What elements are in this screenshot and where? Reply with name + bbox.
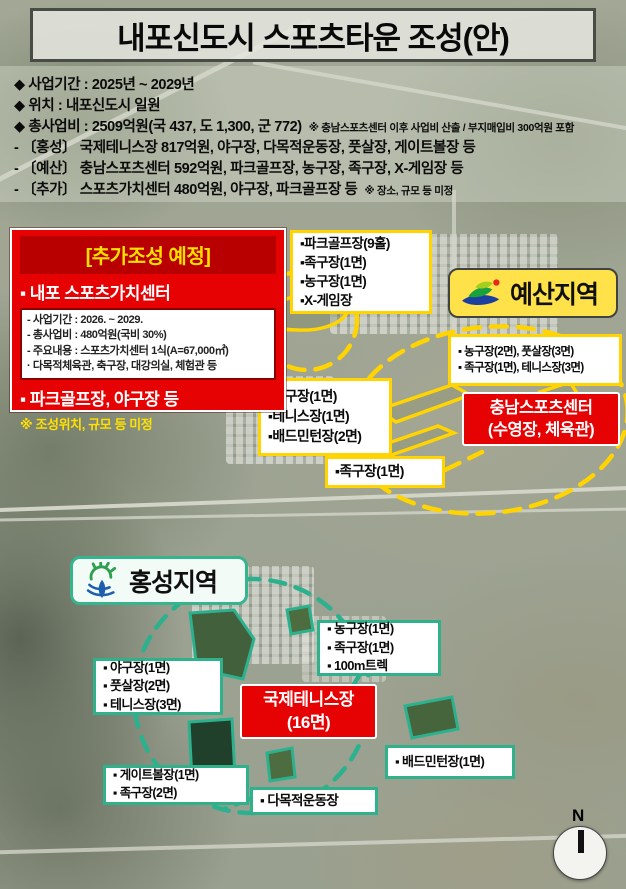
info-row-hongseong: - 〔홍성〕 국제테니스장 817억원, 야구장, 다목적운동장, 풋살장, 게… xyxy=(14,136,614,157)
label-jokgu: ▪족구장(1면) xyxy=(325,456,445,488)
additional-plan-box: [추가조성 예정] ▪ 내포 스포츠가치센터 - 사업기간 : 2026. ~ … xyxy=(10,228,286,412)
label-hs-baseball: ▪ 야구장(1면) ▪ 풋살장(2면) ▪ 테니스장(3면) xyxy=(93,658,223,715)
label-multipurpose: ▪ 다목적운동장 xyxy=(250,787,378,815)
plan-box-header: [추가조성 예정] xyxy=(20,236,276,274)
info-row-additional: - 〔추가〕 스포츠가치센터 480억원, 야구장, 파크골프장 등※ 장소, … xyxy=(14,178,614,199)
page-title-text: 내포신도시 스포츠타운 조성(안) xyxy=(117,13,509,58)
hongseong-region-badge: 홍성지역 xyxy=(70,556,248,605)
yesan-connector-line xyxy=(445,452,482,470)
label-hs-track: ▪ 농구장(1면) ▪ 족구장(1면) ▪ 100m트렉 xyxy=(317,620,441,676)
compass-icon xyxy=(553,826,607,880)
compass-north-label: N xyxy=(572,806,584,826)
label-gateball: ▪ 게이트볼장(1면) ▪ 족구장(2면) xyxy=(103,765,249,805)
map-road xyxy=(0,833,626,854)
info-additional-note: ※ 장소, 규모 등 미정 xyxy=(364,185,453,197)
intl-tennis-center-label: 국제테니스장 (16면) xyxy=(240,684,377,739)
hongseong-region-label: 홍성지역 xyxy=(129,563,217,599)
poster: 내포신도시 스포츠타운 조성(안) ◆ 사업기간 : 2025년 ~ 2029년… xyxy=(0,0,626,889)
yesan-region-label: 예산지역 xyxy=(510,275,598,311)
hongseong-facility-outline xyxy=(405,697,458,738)
project-info: ◆ 사업기간 : 2025년 ~ 2029년 ◆ 위치 : 내포신도시 일원 ◆… xyxy=(0,66,626,202)
compass-needle xyxy=(578,830,584,853)
page-title: 내포신도시 스포츠타운 조성(안) xyxy=(30,8,596,62)
info-row-yesan: - 〔예산〕 충남스포츠센터 592억원, 파크골프장, 농구장, 족구장, X… xyxy=(14,157,614,178)
hongseong-facility-outline xyxy=(267,748,295,781)
map-road xyxy=(0,507,626,521)
yesan-logo-icon xyxy=(460,277,502,309)
plan-footnote: ※ 조성위치, 규모 등 미정 xyxy=(20,414,276,433)
yesan-region-badge: 예산지역 xyxy=(448,268,618,318)
info-row-location: ◆ 위치 : 내포신도시 일원 xyxy=(14,94,614,115)
info-budget-note: ※ 충남스포츠센터 이후 사업비 산출 / 부지매입비 300억원 포함 xyxy=(309,122,574,134)
chungnam-sports-center-label: 충남스포츠센터 (수영장, 체육관) xyxy=(462,392,620,446)
label-badminton: ▪ 배드민턴장(1면) xyxy=(385,745,515,779)
info-row-period: ◆ 사업기간 : 2025년 ~ 2029년 xyxy=(14,73,614,94)
label-yesan-courts: ▪ 농구장(2면), 풋살장(3면) ▪ 족구장(1면), 테니스장(3면) xyxy=(448,334,622,386)
label-yesan-parkgolf: ▪파크골프장(9홀) ▪족구장(1면) ▪농구장(1면) ▪X-게임장 xyxy=(290,230,432,314)
plan-details: - 사업기간 : 2026. ~ 2029. - 총사업비 : 480억원(국비… xyxy=(20,308,276,380)
info-row-budget: ◆ 총사업비 : 2509억원(국 437, 도 1,300, 군 772)※ … xyxy=(14,115,614,136)
hongseong-logo-icon xyxy=(83,562,121,600)
plan-item-parkgolf: ▪ 파크골프장, 야구장 등 xyxy=(20,385,276,410)
plan-item-center: ▪ 내포 스포츠가치센터 xyxy=(20,279,276,304)
